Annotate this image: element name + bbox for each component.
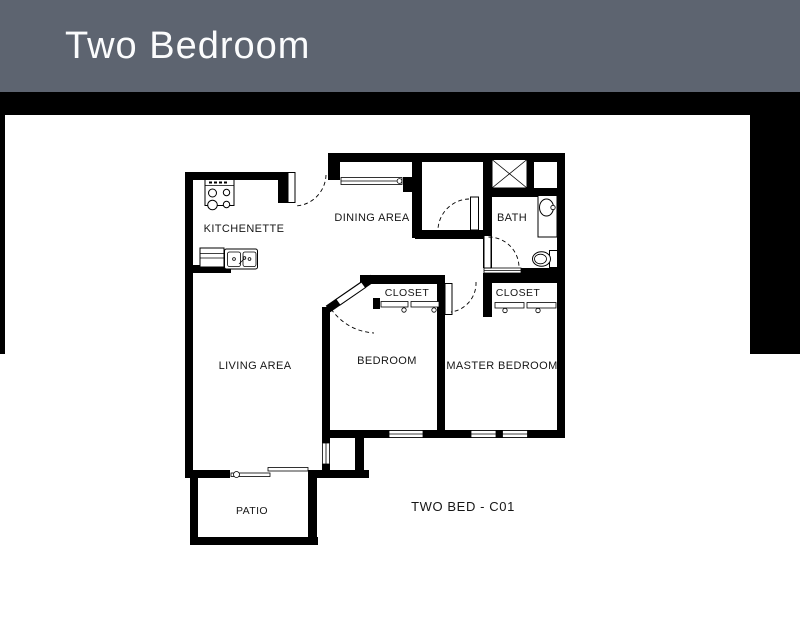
label-master-closet: CLOSET: [496, 287, 541, 299]
bath-threshold: [484, 268, 521, 273]
label-kitchenette: KITCHENETTE: [204, 223, 285, 235]
label-living-area: LIVING AREA: [219, 360, 292, 372]
label-bedroom: BEDROOM: [357, 355, 417, 367]
label-bath: BATH: [497, 212, 527, 224]
toilet-icon: [533, 251, 558, 268]
door-arc: [451, 282, 476, 312]
master-window-1: [471, 431, 496, 438]
kitchen-sink-icon: [200, 248, 258, 269]
bedroom-door: [331, 282, 374, 333]
master-bedroom-door: [445, 282, 476, 315]
door-arc: [331, 309, 374, 333]
master-closet-bifold: [495, 303, 556, 313]
bath-door: [484, 236, 519, 269]
label-patio: PATIO: [236, 505, 268, 517]
door-arc: [489, 237, 520, 268]
nook-window: [323, 443, 330, 464]
stove-icon: [205, 180, 234, 210]
bathroom-sink-icon: [538, 196, 557, 238]
master-window-2: [503, 431, 528, 438]
page-title: Two Bedroom: [65, 25, 310, 68]
label-dining-area: DINING AREA: [334, 212, 410, 224]
door-arc: [438, 199, 469, 229]
shower-icon: [492, 160, 527, 189]
entry-hall-door: [438, 197, 479, 230]
patio-sliding-door: [230, 468, 308, 479]
unit-label: TWO BED - C01: [411, 499, 515, 514]
bedroom-window: [389, 431, 423, 438]
kitchen-entry-door: [288, 173, 326, 207]
dining-window: [341, 178, 402, 185]
floorplan-panel: KITCHENETTE DINING AREA BATH CLOSET CLOS…: [5, 115, 750, 622]
door-arc: [295, 175, 326, 206]
page-header: Two Bedroom: [0, 0, 800, 92]
label-master-bedroom: MASTER BEDROOM: [446, 360, 557, 372]
floorplan-drawing: KITCHENETTE DINING AREA BATH CLOSET CLOS…: [5, 115, 750, 622]
bedroom-closet-bifold: [381, 302, 439, 313]
label-bedroom-closet: CLOSET: [385, 287, 430, 299]
